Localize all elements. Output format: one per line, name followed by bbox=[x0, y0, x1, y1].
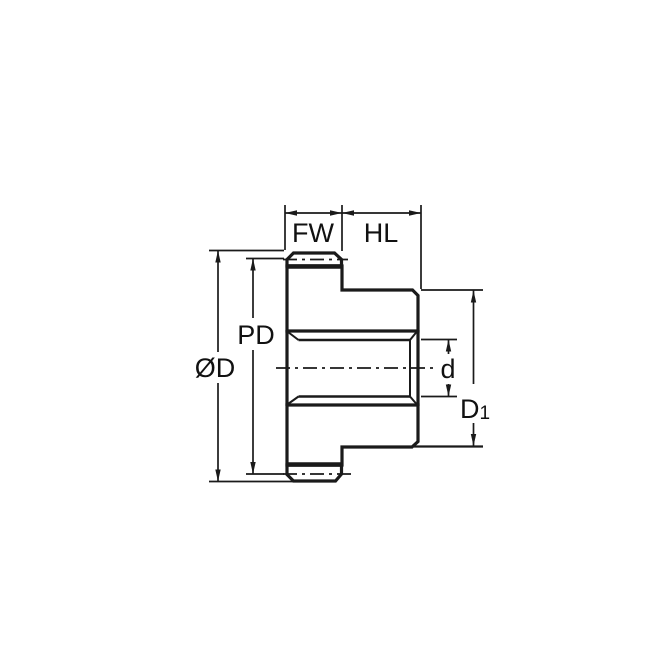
gear-dimension-diagram: FW HL ØD PD bbox=[0, 0, 670, 670]
d-arrow-bottom bbox=[446, 385, 451, 397]
od-arrow-top bbox=[215, 251, 220, 263]
hl-label: HL bbox=[364, 218, 399, 248]
d1-arrow-bottom bbox=[471, 434, 476, 446]
fw-label: FW bbox=[292, 218, 334, 248]
fw-hl-dimension-group: FW HL bbox=[285, 205, 421, 289]
bore-dimension-group: d bbox=[421, 340, 457, 397]
od-label: ØD bbox=[195, 353, 236, 383]
bore-chamfer-top-left bbox=[288, 332, 299, 340]
d-label: d bbox=[440, 354, 455, 384]
d1-label-sub: 1 bbox=[480, 403, 491, 424]
d-arrow-top bbox=[446, 340, 451, 352]
d1-label: D1 bbox=[460, 394, 490, 424]
pd-arrow-top bbox=[250, 259, 255, 271]
fw-arrow-right bbox=[330, 210, 342, 215]
bore-chamfer-bottom-left bbox=[288, 397, 299, 405]
bore-chamfer-top-right bbox=[410, 332, 417, 340]
pd-dimension-group: PD bbox=[237, 259, 284, 475]
bottom-tooth-shape bbox=[287, 465, 342, 481]
gear-body-lower bbox=[287, 405, 418, 465]
d1-arrow-top bbox=[471, 291, 476, 303]
bore-chamfer-bottom-right bbox=[410, 397, 417, 405]
pd-arrow-bottom bbox=[250, 462, 255, 474]
od-dimension-group: ØD bbox=[195, 251, 293, 482]
gear-body-upper bbox=[287, 266, 418, 331]
hl-arrow-right bbox=[409, 210, 421, 215]
d1-label-main: D bbox=[460, 394, 480, 424]
fw-arrow-left bbox=[285, 210, 297, 215]
gear-part bbox=[276, 253, 433, 481]
od-arrow-bottom bbox=[215, 470, 220, 482]
hl-arrow-left bbox=[342, 210, 354, 215]
pd-label: PD bbox=[237, 320, 275, 350]
gear-diagram-svg: FW HL ØD PD bbox=[0, 0, 670, 670]
